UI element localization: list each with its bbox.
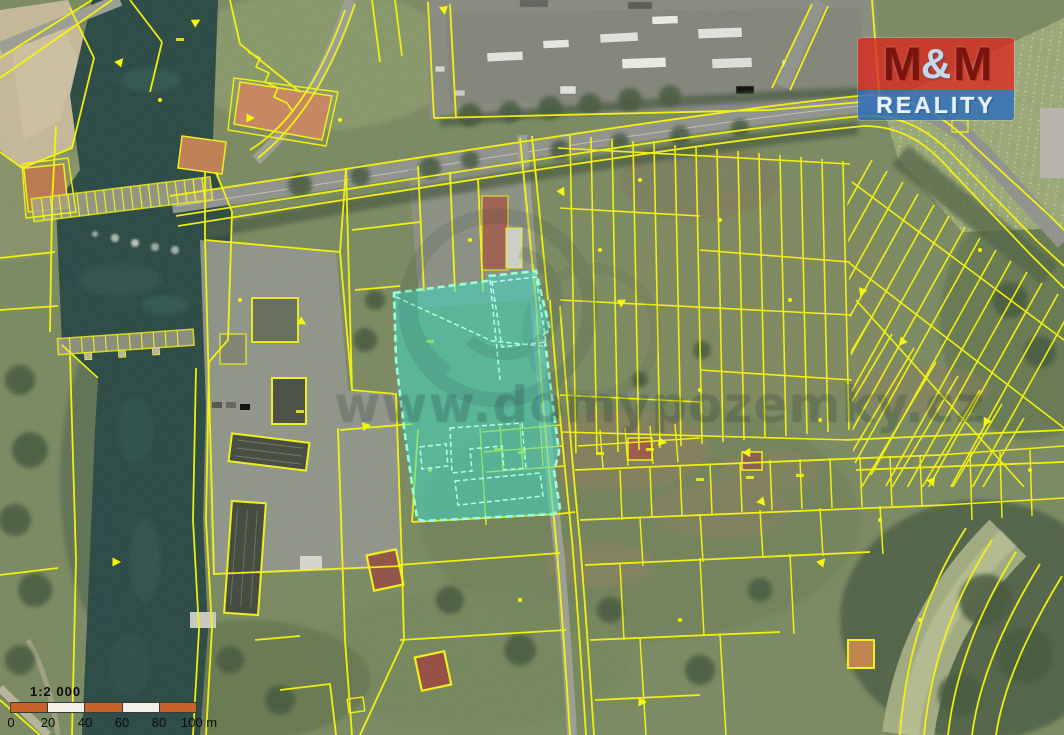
cadastral-map: www.domypozemky.cz M & M REALITY 1:2 000…: [0, 0, 1064, 735]
scalebar-tick: 0: [0, 715, 29, 730]
scalebar-tick: 60: [104, 715, 140, 730]
scalebar-tick: 80: [141, 715, 177, 730]
logo-mm-row: M & M: [858, 38, 1014, 90]
mm-reality-logo: M & M REALITY: [858, 38, 1014, 120]
scalebar-tick: 20: [30, 715, 66, 730]
scalebar-segment: [160, 703, 196, 712]
scalebar-segment: [11, 703, 48, 712]
scalebar-segment: [123, 703, 160, 712]
logo-reality-banner: REALITY: [858, 90, 1014, 120]
scalebar-segment: [48, 703, 85, 712]
scalebar-segment: [85, 703, 122, 712]
logo-reality-text: REALITY: [876, 92, 995, 119]
scalebar-tick: 40: [67, 715, 103, 730]
logo-m-right: M: [953, 39, 989, 89]
scalebar-ticks: 0 20 40 60 80 100 m: [6, 715, 246, 729]
scale-ratio-label: 1:2 000: [30, 684, 81, 699]
scalebar-tick: 100 m: [174, 715, 224, 730]
logo-ampersand: &: [921, 39, 951, 89]
logo-m-left: M: [883, 39, 919, 89]
scalebar-segments: [10, 702, 197, 713]
map-scalebar: 1:2 000 0 20 40 60 80 100 m: [6, 684, 246, 730]
